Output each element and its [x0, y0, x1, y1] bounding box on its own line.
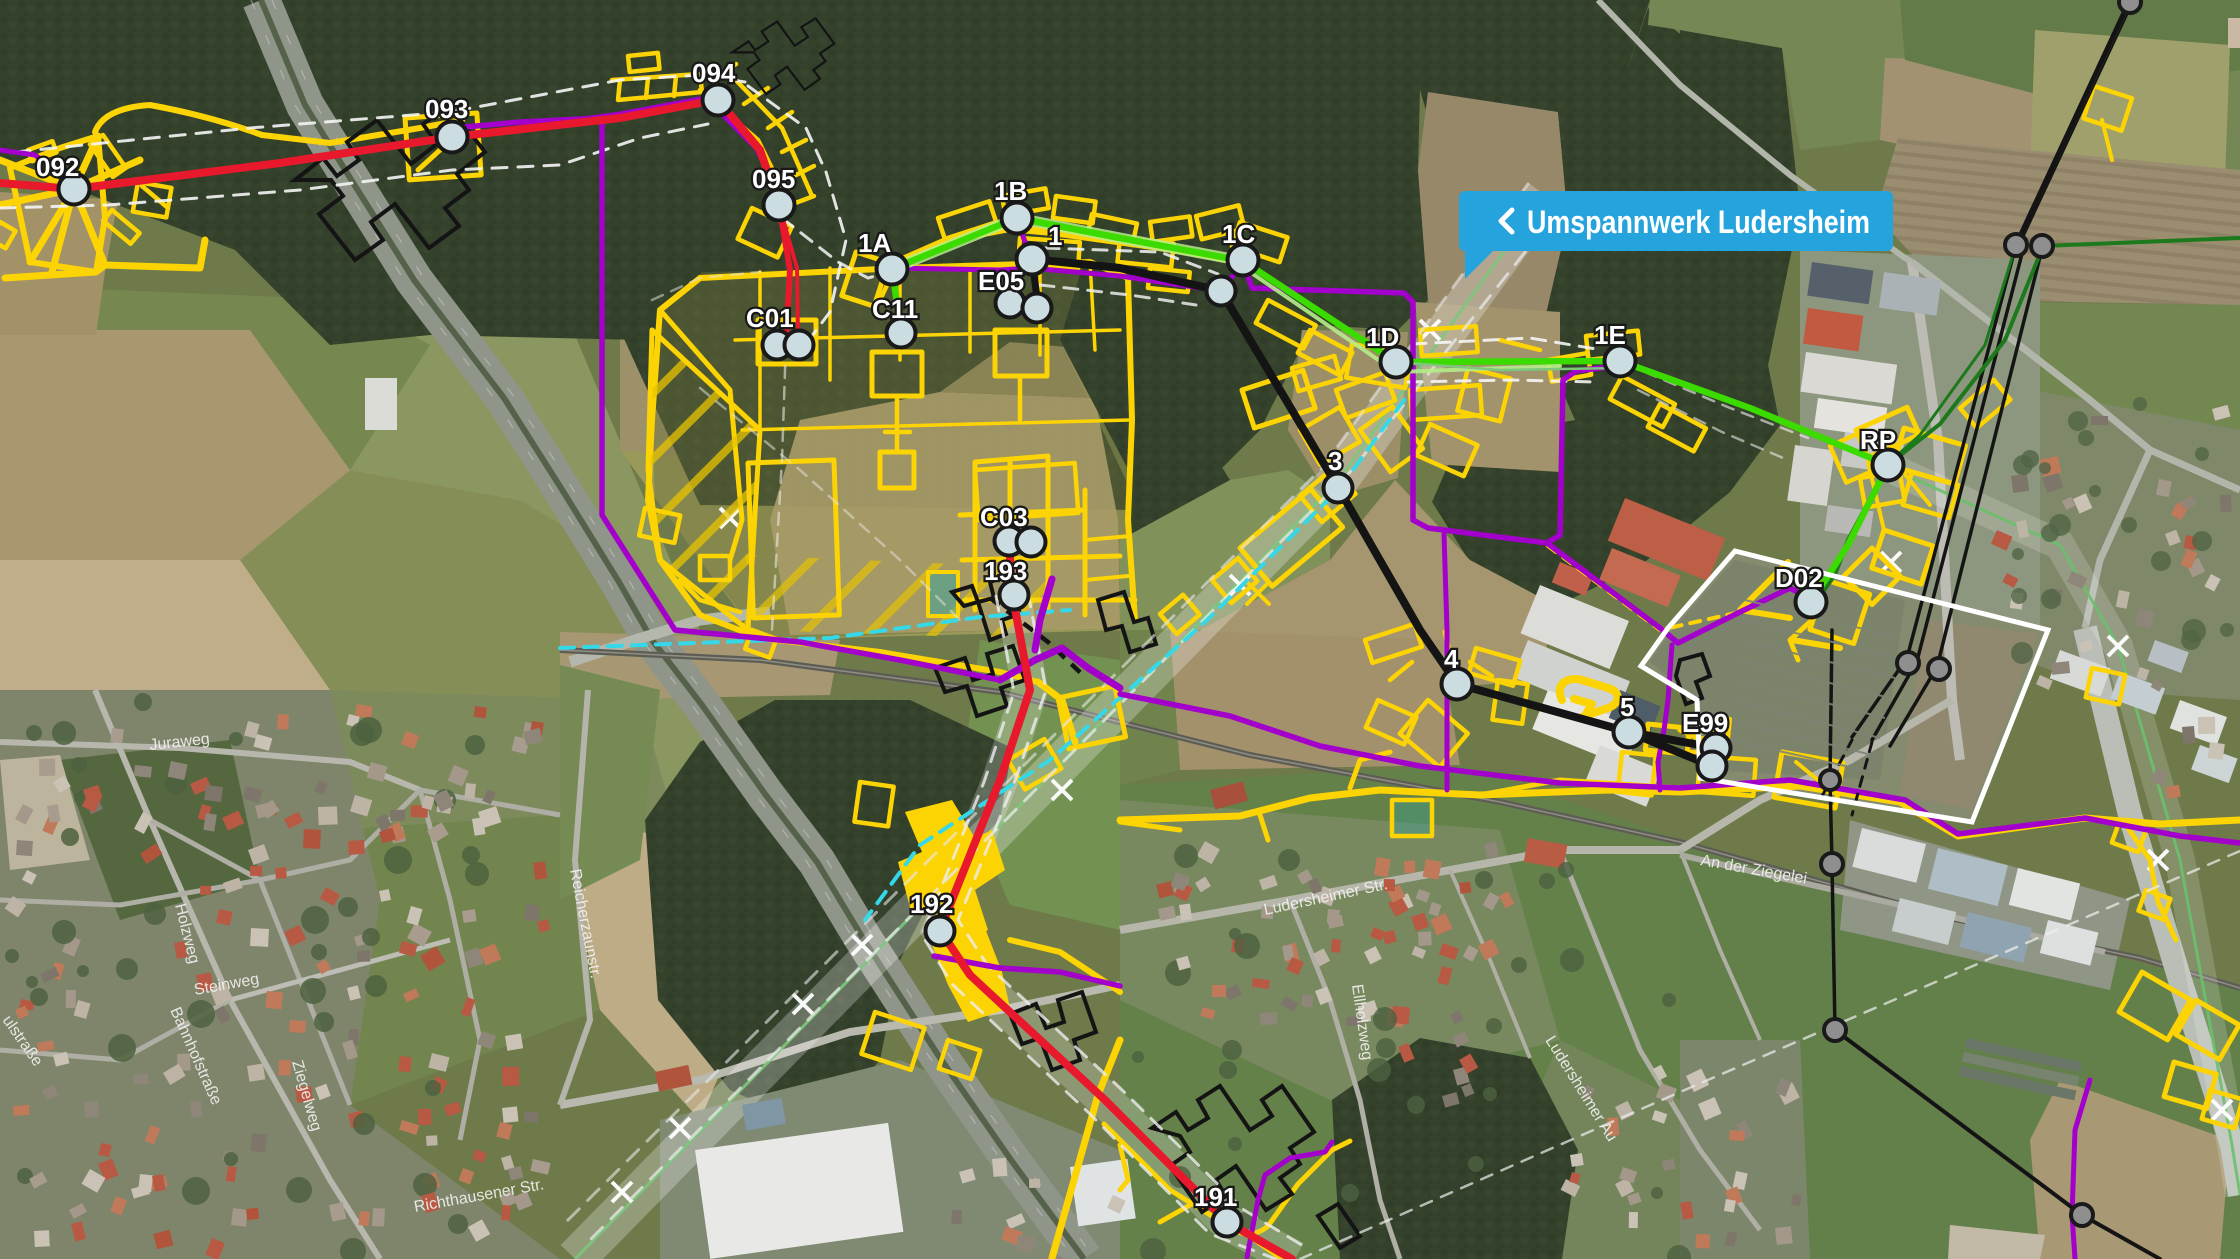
svg-text:D02: D02 — [1775, 563, 1823, 593]
svg-text:094: 094 — [692, 58, 736, 88]
svg-text:093: 093 — [425, 94, 468, 124]
svg-text:Umspannwerk Ludersheim: Umspannwerk Ludersheim — [1527, 204, 1870, 240]
svg-text:092: 092 — [36, 152, 79, 182]
svg-text:E99: E99 — [1682, 708, 1728, 738]
svg-text:C11: C11 — [872, 294, 918, 324]
svg-text:1A: 1A — [858, 228, 891, 258]
svg-text:191: 191 — [1194, 1182, 1237, 1212]
svg-text:E05: E05 — [978, 266, 1024, 296]
svg-text:5: 5 — [1620, 692, 1634, 722]
svg-text:192: 192 — [910, 889, 953, 919]
svg-text:1C: 1C — [1222, 219, 1255, 249]
svg-text:1E: 1E — [1594, 320, 1626, 350]
svg-text:C03: C03 — [980, 502, 1028, 532]
svg-text:4: 4 — [1444, 644, 1459, 674]
svg-text:1: 1 — [1048, 221, 1062, 251]
svg-text:RP: RP — [1860, 425, 1896, 455]
svg-text:095: 095 — [752, 164, 795, 194]
svg-text:1D: 1D — [1366, 322, 1399, 352]
svg-text:193: 193 — [984, 556, 1027, 586]
svg-text:C01: C01 — [746, 303, 794, 333]
svg-text:1B: 1B — [994, 176, 1027, 206]
svg-text:3: 3 — [1328, 446, 1342, 476]
